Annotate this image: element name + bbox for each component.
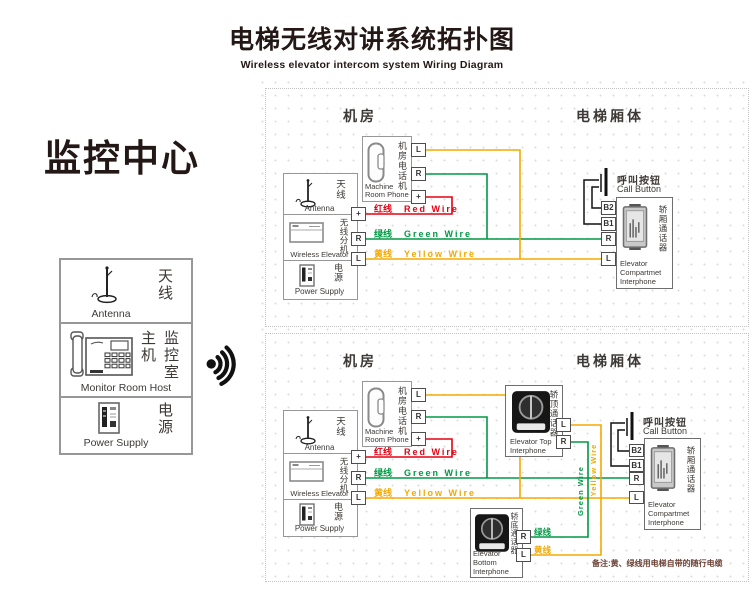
machine-room-phone-box-s2: 机房电话机 Machine Room Phone [362,381,412,447]
monitor-power-label-zh: 电源 [154,402,175,436]
power-cell-s2: 电源 Power Supply [284,500,357,534]
section2-machine-room-header: 机房 [343,351,377,371]
wireless-signal-icon [194,334,257,397]
terminal-b1: B1 [629,459,644,472]
compartment-interphone-icon [621,204,649,250]
terminal-r: R [629,472,644,485]
terminal-l: L [556,418,571,432]
antenna-icon [294,414,322,446]
green-wire-en: Green Wire [404,229,472,239]
antenna-cell-s1: 天线 Antenna [284,174,357,215]
machine-room-phone-label-en: Machine Room Phone [365,428,411,445]
terminal-r: R [601,232,616,246]
speaker-icon [475,513,509,553]
terminal-plus: + [351,450,366,464]
call-button-label-en-s2: Call Button [643,426,687,436]
top-interphone-label-en: Elevator Top Interphone [510,437,560,455]
page-title-block: 电梯无线对讲系统拓扑图 Wireless elevator intercom s… [172,20,572,71]
call-button-label-en-s1: Call Button [617,184,661,194]
red-wire-zh: 红线 [374,204,392,214]
page-subtitle: Wireless elevator intercom system Wiring… [172,59,572,71]
antenna-icon [89,264,125,306]
terminal-plus: + [411,432,426,446]
green-wire-en: Green Wire [404,468,472,478]
terminal-l: L [601,252,616,266]
green-wire-label-s1: 绿线Green Wire [374,227,472,240]
red-wire-zh: 红线 [374,447,392,457]
compartment-interphone-box-s1: 轿厢通话器 Elevator Compartmet Interphone [616,197,673,289]
red-wire-en: Red Wire [404,204,459,214]
antenna-label-zh: 天线 [332,179,346,200]
power-supply-icon [299,264,315,287]
wireless-ext-label-en: Wireless Elevator [284,250,355,259]
wireless-ext-label-zh: 无线分机 [338,218,350,254]
page-title: 电梯无线对讲系统拓扑图 [172,20,572,56]
terminal-l: L [411,388,426,402]
wireless-ext-label-zh: 无线分机 [338,457,350,493]
antenna-label-en: Antenna [284,443,355,452]
elevator-top-interphone-box: 轿顶通话器 Elevator Top Interphone [505,385,563,457]
machine-room-phone-label-en: Machine Room Phone [365,183,411,200]
wireless-extension-icon [289,222,325,244]
terminal-r: R [351,471,366,485]
machine-room-phone-box-s1: 机房电话机 Machine Room Phone [362,136,412,202]
monitor-host-label-zh: 主机 监控室 [137,330,181,381]
terminal-r: R [411,167,426,181]
wireless-ext-label-en: Wireless Elevator [284,489,355,498]
power-label-en: Power Supply [284,287,355,296]
antenna-cell-s2: 天线 Antenna [284,411,357,454]
yellow-wire-zh: 黄线 [374,249,392,259]
terminal-r: R [411,410,426,424]
power-cell-s1: 电源 Power Supply [284,261,357,297]
monitor-host-label-col-left: 主机 [137,330,158,381]
power-label-zh: 电源 [332,502,345,521]
monitor-center-box: 天线 Antenna 主机 监控室 Mo [59,258,193,455]
monitor-antenna-label-zh: 天线 [154,268,175,302]
yellow-wire-zh-label: 黄线 [534,544,551,556]
terminal-l: L [629,491,644,504]
terminal-r: R [516,530,531,544]
terminal-l: L [351,252,366,266]
compartment-label-zh-s2: 轿厢通话器 [685,446,697,494]
compartment-label-en-s1: Elevator Compartmet Interphone [620,259,672,286]
monitor-antenna-cell: 天线 Antenna [61,260,191,324]
compartment-label-zh-s1: 轿厢通话器 [657,205,669,253]
wireless-unit-box-s2: 天线 Antenna 无线分机 Wireless Elevator 电源 Pow… [283,410,358,537]
compartment-interphone-icon [649,445,677,491]
green-wire-zh-label: 绿线 [534,526,551,538]
terminal-r: R [351,232,366,246]
power-label-en: Power Supply [284,524,355,533]
section1-elevator-body-header: 电梯厢体 [576,106,644,126]
section2-elevator-body-header: 电梯厢体 [576,351,644,371]
yellow-wire-en: Yellow Wire [404,249,476,259]
monitor-center-heading: 监控中心 [44,128,200,182]
power-supply-icon [299,503,315,526]
power-supply-icon [98,402,120,434]
handset-icon [367,142,389,184]
yellow-wire-label-s2: 黄线Yellow Wire [374,486,476,499]
terminal-b2: B2 [629,444,644,457]
antenna-label-zh: 天线 [332,416,346,437]
wiring-diagram-canvas: 电梯无线对讲系统拓扑图 Wireless elevator intercom s… [0,0,750,589]
terminal-b1: B1 [601,217,616,231]
handset-icon [367,387,389,429]
terminal-plus: + [351,207,366,221]
green-wire-zh: 绿线 [374,468,392,478]
yellow-wire-en: Yellow Wire [404,488,476,498]
monitor-power-label-en: Power Supply [61,437,171,449]
yellow-wire-label-s1: 黄线Yellow Wire [374,247,476,260]
monitor-host-label-en: Monitor Room Host [61,382,191,394]
monitor-antenna-label-en: Antenna [61,308,161,320]
red-wire-label-s2: 红线Red Wire [374,445,459,458]
yellow-wire-vertical-label: Yellow Wire [589,435,599,505]
desk-phone-icon [69,330,135,380]
green-wire-vertical-label: Green Wire [576,456,586,526]
red-wire-en: Red Wire [404,447,459,457]
wireless-unit-box-s1: 天线 Antenna 无线分机 Wireless Elevator 电源 Pow… [283,173,358,300]
terminal-r: R [556,435,571,449]
wireless-extension-icon [289,461,325,483]
footnote: 备注:黄、绿线用电梯自带的随行电缆 [592,558,723,569]
compartment-label-en-s2: Elevator Compartmet Interphone [648,500,700,527]
red-wire-label-s1: 红线Red Wire [374,202,459,215]
terminal-l: L [516,548,531,562]
wireless-ext-cell-s2: 无线分机 Wireless Elevator [284,454,357,500]
monitor-power-cell: 电源 Power Supply [61,398,191,451]
compartment-interphone-box-s2: 轿厢通话器 Elevator Compartmet Interphone [644,438,701,530]
green-wire-zh: 绿线 [374,229,392,239]
antenna-label-en: Antenna [284,204,355,213]
wireless-ext-cell-s1: 无线分机 Wireless Elevator [284,215,357,261]
speaker-icon [512,391,550,433]
monitor-host-label-col-right: 监控室 [160,330,181,381]
yellow-wire-zh: 黄线 [374,488,392,498]
green-wire-label-s2: 绿线Green Wire [374,466,472,479]
section1-machine-room-header: 机房 [343,106,377,126]
bottom-interphone-label-en: Elevator Bottom Interphone [473,549,522,576]
power-label-zh: 电源 [332,263,345,282]
terminal-l: L [351,491,366,505]
terminal-b2: B2 [601,201,616,215]
monitor-host-cell: 主机 监控室 Monitor Room Host [61,324,191,398]
terminal-l: L [411,143,426,157]
